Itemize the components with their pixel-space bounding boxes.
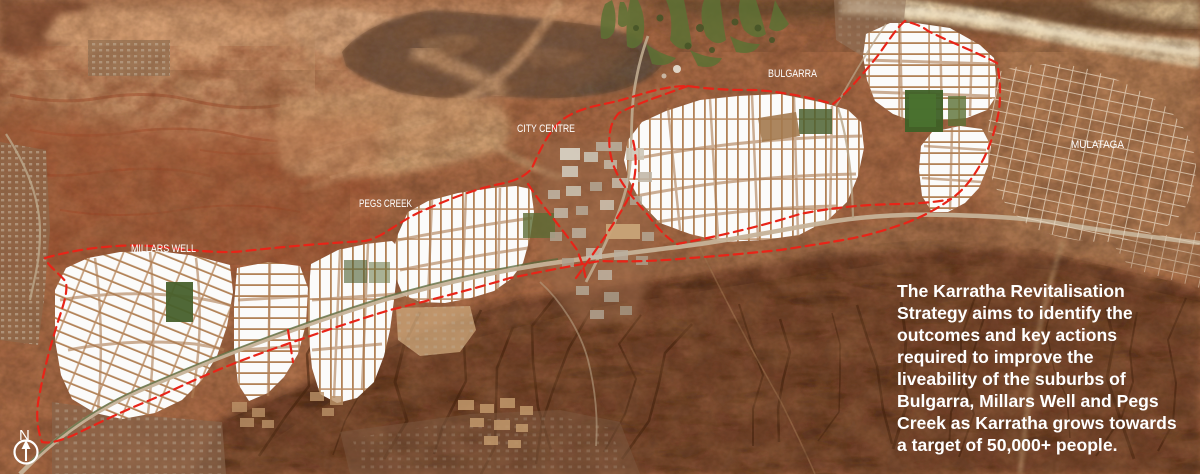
svg-text:BULGARRA: BULGARRA xyxy=(768,68,818,80)
svg-text:a target of 50,000+ people.: a target of 50,000+ people. xyxy=(897,435,1118,455)
svg-text:CITY CENTRE: CITY CENTRE xyxy=(517,123,575,135)
svg-text:MILLARS WELL: MILLARS WELL xyxy=(131,243,196,255)
svg-text:The Karratha Revitalisation: The Karratha Revitalisation xyxy=(897,281,1125,301)
svg-text:outcomes and key actions: outcomes and key actions xyxy=(897,325,1117,345)
svg-text:PEGS CREEK: PEGS CREEK xyxy=(359,198,412,210)
svg-text:Strategy aims to identify the: Strategy aims to identify the xyxy=(897,303,1133,323)
svg-text:Bulgarra, Millars Well and Peg: Bulgarra, Millars Well and Pegs xyxy=(897,391,1159,411)
svg-text:Creek as Karratha grows toward: Creek as Karratha grows towards xyxy=(897,413,1177,433)
svg-text:MULATAGA: MULATAGA xyxy=(1071,139,1125,151)
svg-text:liveability of the suburbs of: liveability of the suburbs of xyxy=(897,369,1126,389)
svg-text:required to improve the: required to improve the xyxy=(897,347,1094,367)
svg-text:N: N xyxy=(19,427,30,444)
